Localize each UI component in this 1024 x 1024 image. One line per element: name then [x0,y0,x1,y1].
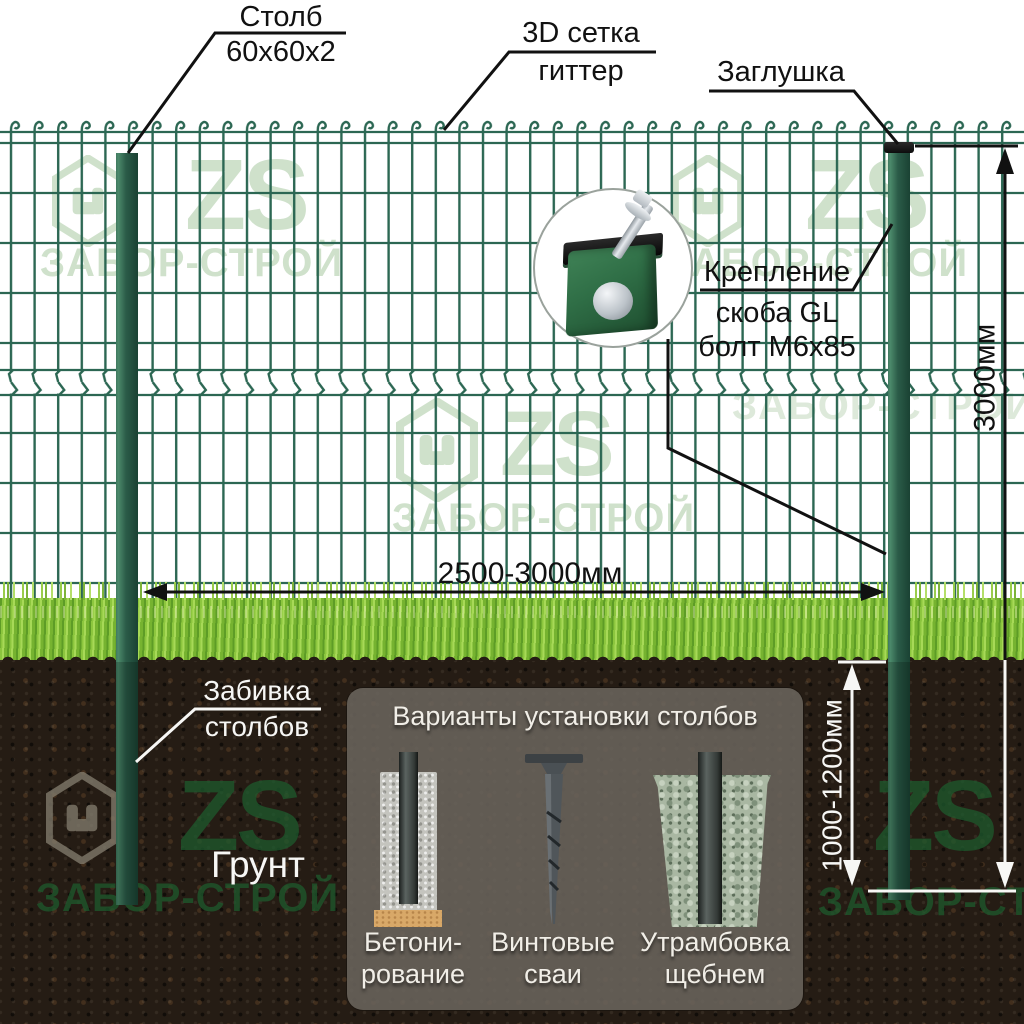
label-mesh-line1: 3D сетка [505,18,657,48]
label-post-size: 60x60x2 [215,37,347,67]
post-cap [884,142,914,153]
sand-base [374,910,442,927]
fastener-detail-circle [533,188,693,348]
fence-post-left [116,153,138,905]
option-label: Винтовые [479,928,627,956]
label-cap: Заглушка [705,57,857,87]
screw-pile [523,752,585,928]
label-driving-line2: столбов [190,712,324,743]
label-fastener-title: Крепление [698,257,856,287]
dimension-depth-text: 1000-1200мм [818,675,849,895]
label-ground: Грунт [198,845,318,886]
mini-post [698,752,722,924]
post-underground-left [116,662,138,905]
option-label: сваи [479,960,627,988]
label-fastener-line1: скоба GL [698,298,856,328]
label-mesh-line2: гиттер [505,56,657,86]
option-label: рование [347,960,479,988]
option-label: щебнем [627,960,803,988]
fence-post-right [888,152,910,900]
installation-options-panel: Варианты установки столбов Бетони- рован… [347,688,803,1010]
mini-post [399,752,418,904]
dimension-height-text: 3000мм [969,278,1001,478]
label-driving-line1: Забивка [190,676,324,707]
panel-title: Варианты установки столбов [347,702,803,730]
option-label: Утрамбовка [627,928,803,956]
option-label: Бетони- [347,928,479,956]
dimension-span-text: 2500-3000мм [430,558,630,590]
label-fastener-line2: болт M6x85 [690,332,864,362]
post-underground-right [888,662,910,900]
fence-installation-diagram: ZS ЗАБОР-СТРОЙ ZS ЗАБОР-СТРОЙ ZS ЗАБОР-С… [0,0,1024,1024]
label-post-title: Столб [215,2,347,32]
clamp-dome-nut [593,282,633,320]
